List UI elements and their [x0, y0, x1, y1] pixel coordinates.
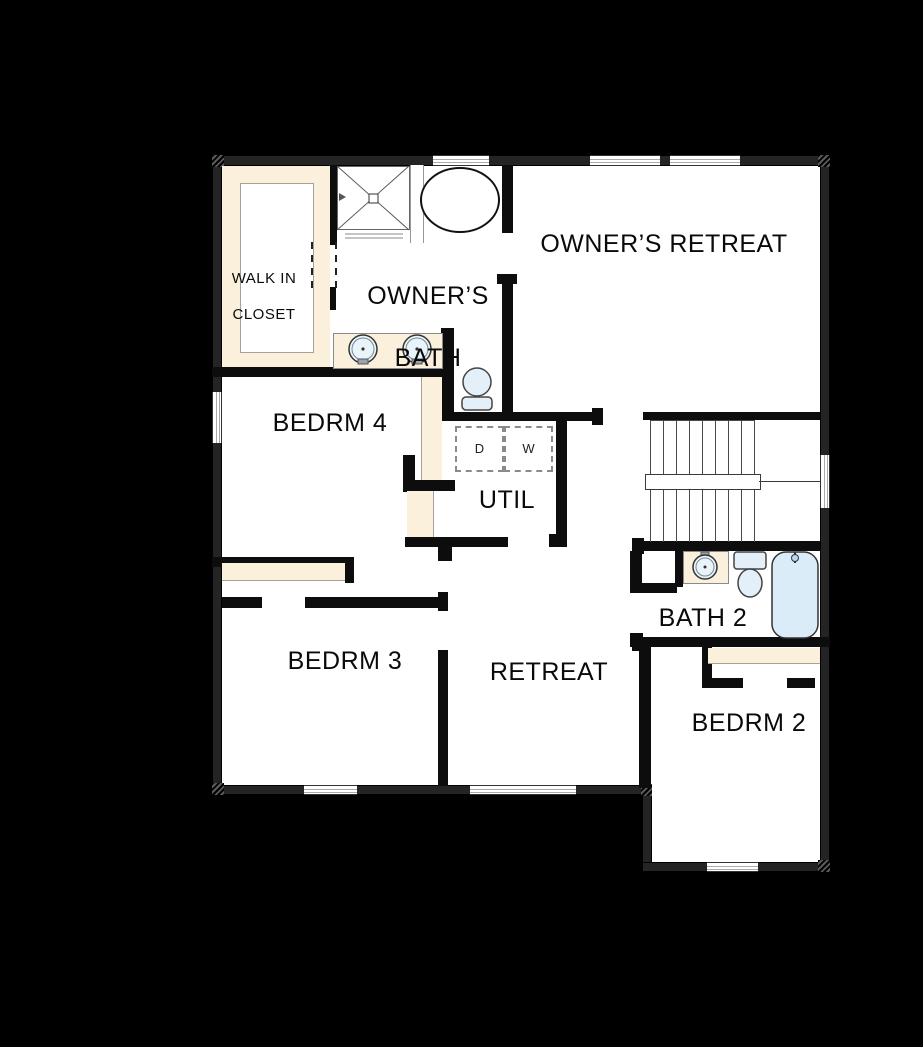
wall-segment	[556, 421, 567, 539]
wall-segment	[441, 412, 601, 421]
window	[590, 155, 660, 166]
room-label-bedrm2: BEDRM 2	[649, 708, 849, 739]
room-label-owners-retreat: OWNER’S RETREAT	[514, 229, 814, 260]
window	[304, 785, 357, 795]
wall-segment	[222, 597, 262, 608]
floor-plan: D W WALK IN CLOSET OWNER’S BAT	[0, 0, 923, 1047]
room-label-walk-in-closet: WALK IN CLOSET	[216, 252, 312, 342]
stair-handrail-line	[759, 481, 820, 482]
room-label-owners-bath: OWNER’S BATH	[352, 250, 504, 405]
window	[820, 455, 830, 508]
window	[212, 392, 222, 443]
room-label-util: UTIL	[447, 485, 567, 516]
wall-segment	[549, 534, 567, 547]
closet-shelf-hall-b	[407, 491, 434, 537]
wall-exterior-bedrm2-left	[642, 786, 652, 866]
owners-bath-line2: BATH	[352, 343, 504, 374]
wall-segment	[643, 412, 820, 420]
room-label-retreat: RETREAT	[449, 657, 649, 688]
wall-segment	[702, 678, 743, 688]
wall-corner-hatch	[818, 860, 830, 872]
cased-opening-dashes	[335, 242, 337, 290]
window	[707, 862, 758, 872]
bathtub-icon-bath2	[770, 550, 820, 640]
owners-bath-line1: OWNER’S	[352, 281, 504, 312]
dryer-box: D	[455, 426, 504, 472]
closet-shelf-bedrm2	[708, 648, 820, 664]
walk-in-line1: WALK IN	[216, 270, 312, 288]
wall-segment	[305, 597, 448, 608]
dryer-label: D	[475, 441, 484, 456]
wall-segment	[345, 557, 354, 583]
wall-segment	[675, 551, 683, 587]
wall-segment	[438, 537, 452, 561]
wall-exterior-bottom	[212, 785, 652, 795]
room-label-bedrm4: BEDRM 4	[230, 408, 430, 439]
wall-segment	[438, 592, 448, 611]
wall-segment	[787, 678, 815, 688]
wall-segment	[405, 537, 508, 547]
room-label-bedrm3: BEDRM 3	[245, 646, 445, 677]
bathtub-icon-owners	[416, 164, 502, 240]
wall-corner-hatch	[212, 783, 224, 795]
wall-segment	[502, 165, 513, 233]
wall-exterior-right	[820, 155, 830, 872]
room-label-bath2: BATH 2	[633, 603, 773, 634]
stair-landing	[645, 474, 761, 490]
closet-shelf-bedrm3	[222, 563, 345, 581]
shower	[337, 166, 410, 242]
sink-icon-bath2	[690, 551, 720, 582]
wall-segment	[592, 408, 603, 425]
washer-box: W	[504, 426, 553, 472]
wall-exterior-left	[212, 155, 222, 795]
walk-in-line2: CLOSET	[216, 306, 312, 324]
washer-label: W	[522, 441, 534, 456]
toilet-icon-bath2	[733, 551, 767, 599]
window	[670, 155, 740, 166]
wall-segment	[630, 583, 677, 593]
window	[470, 785, 576, 795]
wall-corner-hatch	[818, 155, 830, 167]
